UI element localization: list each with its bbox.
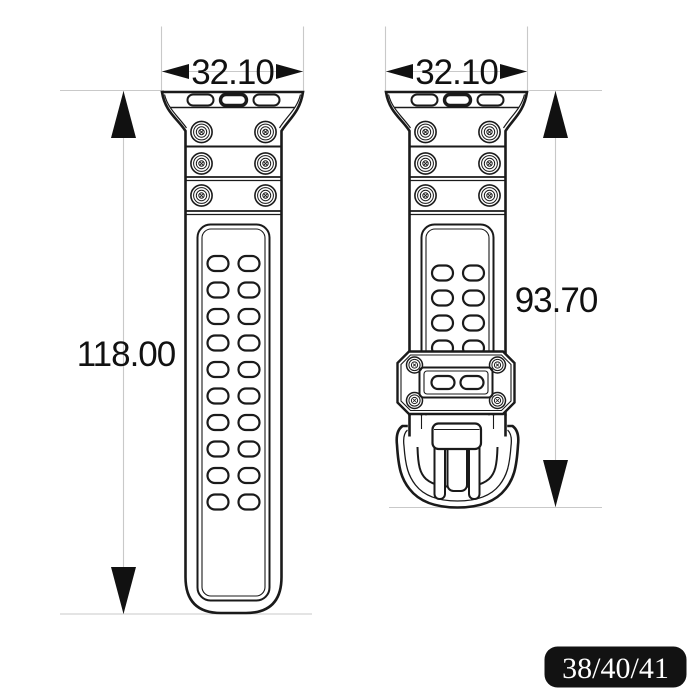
- screw-icon: [255, 185, 276, 206]
- dim-arrow-right-icon: [500, 64, 527, 79]
- keeper-slot-hole: [432, 376, 455, 389]
- strap-hole: [208, 362, 229, 377]
- strap-hole: [208, 283, 229, 298]
- dim-arrow-left-icon: [162, 64, 189, 79]
- strap-hole: [239, 256, 260, 271]
- front-length-label: 118.00: [77, 335, 176, 374]
- strap-hole: [239, 389, 260, 404]
- strap-hole: [239, 495, 260, 510]
- strap-hole: [432, 291, 453, 306]
- size-badge-label: 38/40/41: [562, 652, 669, 685]
- lug-slot: [478, 95, 504, 106]
- lug-slot: [254, 95, 280, 106]
- buckle: [397, 415, 519, 508]
- dim-arrow-left-icon: [386, 64, 413, 79]
- screw-icon: [191, 121, 212, 142]
- strap-hole: [208, 389, 229, 404]
- back-lug-slots: [412, 95, 504, 106]
- dim-arrow-up-icon: [111, 91, 136, 138]
- back-length-label: 93.70: [515, 281, 598, 320]
- drawing-canvas: 32.10 32.10 118.00 93.70 38/40/41: [0, 0, 700, 700]
- screw-icon: [415, 185, 436, 206]
- dim-arrow-down-icon: [111, 567, 136, 614]
- screw-icon: [479, 153, 500, 174]
- band-front-view: [162, 92, 303, 613]
- strap-hole: [239, 442, 260, 457]
- strap-hole: [463, 316, 484, 331]
- strap-hole: [239, 309, 260, 324]
- lug-slot: [188, 95, 214, 106]
- screw-icon: [479, 121, 500, 142]
- screw-icon: [255, 153, 276, 174]
- screw-icon: [490, 393, 506, 409]
- lug-slot-center: [221, 95, 247, 106]
- dimension-drawing: 32.10 32.10 118.00 93.70 38/40/41: [0, 0, 700, 700]
- keeper-outline: [398, 352, 515, 415]
- screw-icon: [255, 121, 276, 142]
- screw-icon: [191, 185, 212, 206]
- buckle-tongue: [433, 424, 482, 500]
- back-width-label: 32.10: [415, 53, 498, 92]
- front-band-outline: [162, 92, 303, 613]
- strap-hole: [432, 266, 453, 281]
- screw-icon: [415, 121, 436, 142]
- strap-hole: [208, 415, 229, 430]
- screw-icon: [407, 393, 423, 409]
- strap-hole: [239, 468, 260, 483]
- keeper-slot-hole: [461, 376, 484, 389]
- strap-hole: [432, 316, 453, 331]
- strap-hole: [239, 336, 260, 351]
- keeper-slider: [398, 352, 515, 415]
- screw-icon: [407, 357, 423, 373]
- strap-hole: [208, 336, 229, 351]
- strap-hole: [208, 495, 229, 510]
- screw-icon: [479, 185, 500, 206]
- front-width-label: 32.10: [191, 53, 274, 92]
- tongue-plate: [433, 424, 482, 450]
- dimension-annotations: 32.10 32.10 118.00 93.70: [77, 53, 598, 614]
- size-badge: 38/40/41: [545, 647, 687, 688]
- screw-icon: [490, 357, 506, 373]
- lug-slot: [412, 95, 438, 106]
- construction-lines: [60, 27, 602, 615]
- tongue-center-bar: [448, 444, 468, 491]
- strap-hole: [208, 468, 229, 483]
- strap-hole: [463, 291, 484, 306]
- strap-hole: [239, 415, 260, 430]
- screw-icon: [191, 153, 212, 174]
- strap-hole: [208, 442, 229, 457]
- dim-arrow-up-icon: [543, 91, 568, 138]
- strap-hole: [208, 309, 229, 324]
- band-back-view: [386, 92, 527, 508]
- dim-arrow-down-icon: [543, 460, 568, 507]
- strap-hole: [463, 266, 484, 281]
- strap-hole: [239, 283, 260, 298]
- strap-hole: [239, 362, 260, 377]
- dim-arrow-right-icon: [276, 64, 303, 79]
- screw-icon: [415, 153, 436, 174]
- lug-slot-center: [445, 95, 471, 106]
- front-lug-slots: [188, 95, 280, 106]
- strap-hole: [208, 256, 229, 271]
